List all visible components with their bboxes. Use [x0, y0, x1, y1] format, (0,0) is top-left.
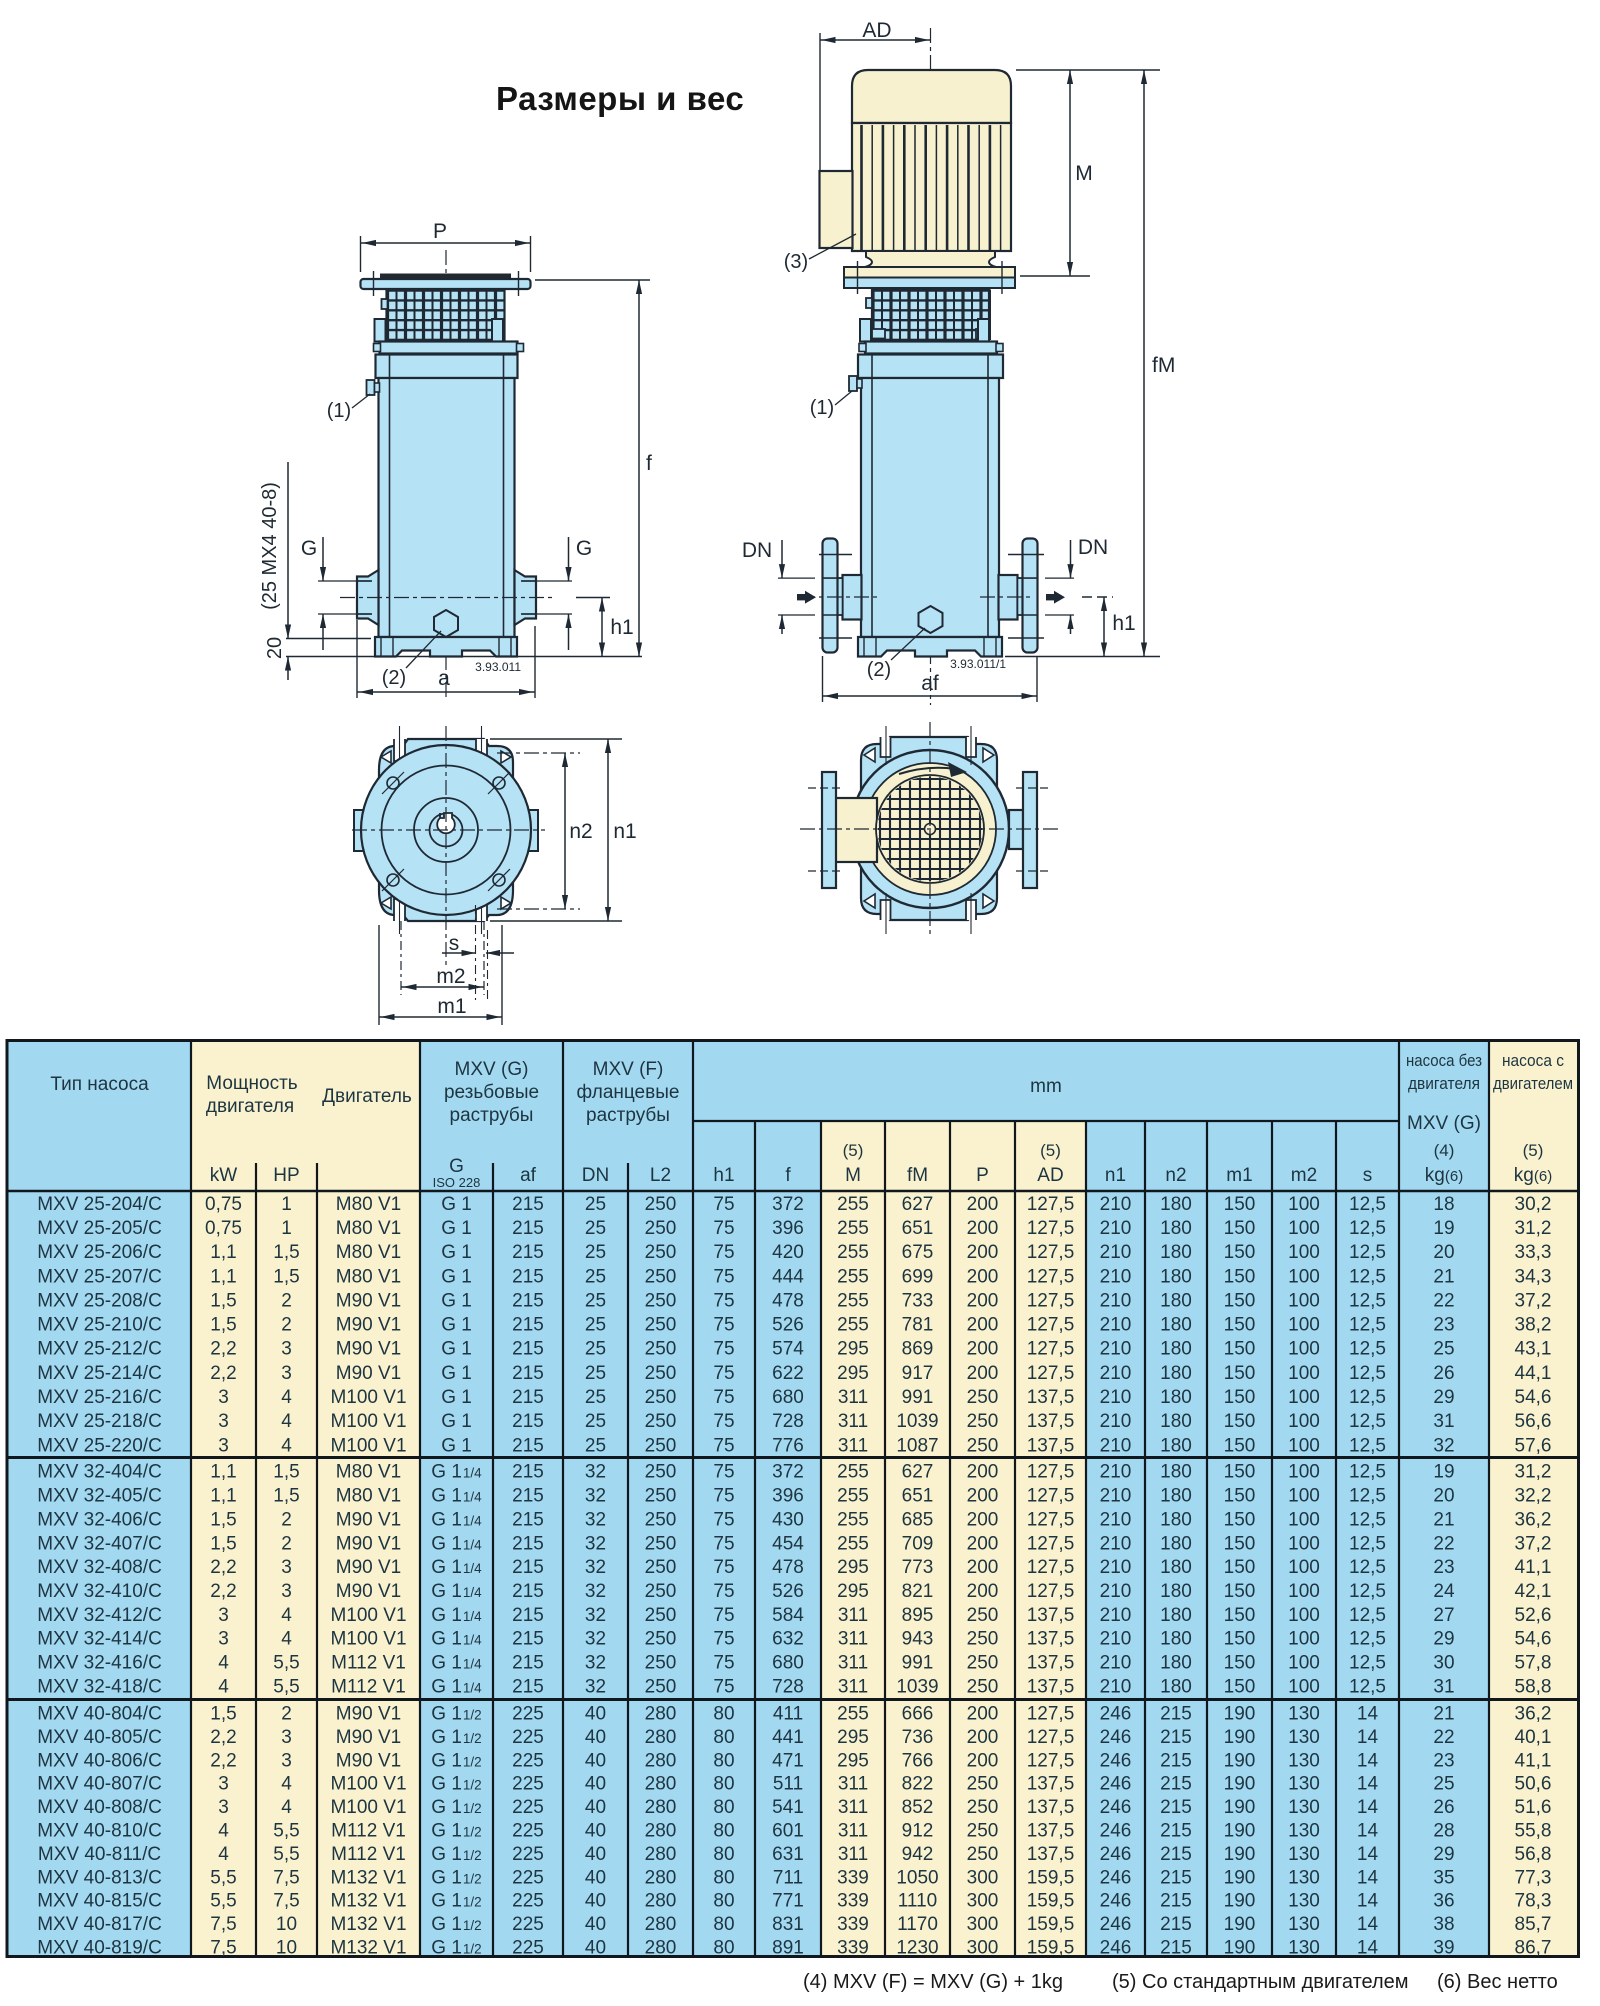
svg-text:G 11/4: G 11/4 — [431, 1653, 482, 1674]
svg-text:5,5: 5,5 — [273, 1844, 299, 1865]
svg-text:2,2: 2,2 — [210, 1363, 236, 1384]
svg-text:200: 200 — [967, 1363, 999, 1384]
svg-text:fM: fM — [1152, 354, 1175, 377]
svg-text:MXV 32-404/C: MXV 32-404/C — [37, 1462, 162, 1483]
svg-text:fM: fM — [907, 1165, 928, 1186]
svg-text:127,5: 127,5 — [1027, 1704, 1075, 1725]
svg-text:12,5: 12,5 — [1349, 1435, 1386, 1456]
svg-text:2,2: 2,2 — [210, 1581, 236, 1602]
svg-text:12,5: 12,5 — [1349, 1676, 1386, 1697]
svg-text:32: 32 — [585, 1629, 606, 1650]
svg-text:300: 300 — [967, 1938, 999, 1959]
svg-text:25: 25 — [1433, 1774, 1454, 1795]
svg-text:26: 26 — [1433, 1797, 1454, 1818]
svg-text:574: 574 — [772, 1339, 804, 1360]
svg-text:AD: AD — [862, 19, 891, 42]
svg-text:250: 250 — [645, 1557, 677, 1578]
svg-text:14: 14 — [1357, 1797, 1379, 1818]
svg-text:M80 V1: M80 V1 — [336, 1218, 401, 1239]
svg-text:G 11/2: G 11/2 — [431, 1844, 481, 1865]
svg-text:19: 19 — [1433, 1218, 1454, 1239]
svg-text:420: 420 — [772, 1242, 804, 1263]
svg-text:32: 32 — [585, 1462, 606, 1483]
svg-text:250: 250 — [645, 1315, 677, 1336]
svg-text:246: 246 — [1100, 1821, 1132, 1842]
svg-text:DN: DN — [1078, 536, 1108, 559]
svg-text:m1: m1 — [1226, 1165, 1252, 1186]
svg-text:300: 300 — [967, 1891, 999, 1912]
svg-text:M90 V1: M90 V1 — [336, 1750, 401, 1771]
svg-text:773: 773 — [902, 1557, 934, 1578]
svg-text:G 11/4: G 11/4 — [431, 1581, 482, 1602]
svg-text:G 11/2: G 11/2 — [431, 1914, 481, 1935]
svg-text:фланцевые: фланцевые — [577, 1082, 680, 1103]
svg-text:100: 100 — [1288, 1242, 1320, 1263]
svg-text:180: 180 — [1160, 1605, 1192, 1626]
svg-text:G 11/4: G 11/4 — [431, 1462, 482, 1483]
svg-text:100: 100 — [1288, 1533, 1320, 1554]
svg-text:651: 651 — [902, 1218, 934, 1239]
svg-text:225: 225 — [512, 1797, 544, 1818]
svg-text:250: 250 — [645, 1266, 677, 1287]
svg-text:200: 200 — [967, 1194, 999, 1215]
svg-text:699: 699 — [902, 1266, 934, 1287]
svg-text:4: 4 — [218, 1821, 229, 1842]
svg-text:250: 250 — [645, 1509, 677, 1530]
svg-text:210: 210 — [1100, 1533, 1132, 1554]
svg-text:150: 150 — [1224, 1363, 1256, 1384]
svg-text:159,5: 159,5 — [1027, 1867, 1075, 1888]
svg-text:MXV 40-815/C: MXV 40-815/C — [37, 1891, 162, 1912]
svg-text:200: 200 — [967, 1315, 999, 1336]
svg-text:651: 651 — [902, 1486, 934, 1507]
svg-text:12,5: 12,5 — [1349, 1509, 1386, 1530]
svg-text:M90 V1: M90 V1 — [336, 1363, 401, 1384]
svg-text:75: 75 — [713, 1266, 734, 1287]
svg-text:M100 V1: M100 V1 — [330, 1774, 406, 1795]
svg-text:32: 32 — [585, 1653, 606, 1674]
svg-text:917: 917 — [902, 1363, 934, 1384]
svg-text:210: 210 — [1100, 1387, 1132, 1408]
svg-text:776: 776 — [772, 1435, 804, 1456]
svg-text:MXV 25-216/C: MXV 25-216/C — [37, 1387, 162, 1408]
svg-text:(5) Со стандартным двигателем: (5) Со стандартным двигателем — [1112, 1971, 1409, 1993]
svg-text:14: 14 — [1357, 1727, 1379, 1748]
svg-text:200: 200 — [967, 1218, 999, 1239]
svg-text:75: 75 — [713, 1339, 734, 1360]
svg-text:75: 75 — [713, 1605, 734, 1626]
svg-text:4: 4 — [281, 1411, 292, 1432]
svg-text:7,5: 7,5 — [273, 1867, 299, 1888]
svg-text:225: 225 — [512, 1774, 544, 1795]
svg-text:2: 2 — [281, 1315, 292, 1336]
svg-text:24: 24 — [1433, 1581, 1455, 1602]
svg-text:75: 75 — [713, 1315, 734, 1336]
svg-text:4: 4 — [218, 1653, 229, 1674]
svg-text:MXV 40-819/C: MXV 40-819/C — [37, 1938, 162, 1959]
svg-text:MXV 25-208/C: MXV 25-208/C — [37, 1290, 162, 1311]
svg-text:280: 280 — [645, 1727, 677, 1748]
svg-text:75: 75 — [713, 1462, 734, 1483]
svg-text:23: 23 — [1433, 1315, 1454, 1336]
svg-text:1110: 1110 — [898, 1891, 937, 1912]
svg-text:130: 130 — [1288, 1938, 1320, 1959]
svg-text:339: 339 — [837, 1938, 869, 1959]
svg-text:MXV 32-416/C: MXV 32-416/C — [37, 1653, 162, 1674]
svg-text:210: 210 — [1100, 1363, 1132, 1384]
svg-text:14: 14 — [1357, 1844, 1379, 1865]
svg-text:180: 180 — [1160, 1194, 1192, 1215]
svg-text:200: 200 — [967, 1486, 999, 1507]
svg-text:12,5: 12,5 — [1349, 1363, 1386, 1384]
svg-text:159,5: 159,5 — [1027, 1891, 1075, 1912]
svg-text:1,1: 1,1 — [210, 1486, 236, 1507]
svg-text:215: 215 — [1160, 1704, 1192, 1725]
svg-text:255: 255 — [837, 1242, 869, 1263]
svg-text:215: 215 — [512, 1509, 544, 1530]
svg-text:насоса с: насоса с — [1502, 1051, 1564, 1070]
svg-text:255: 255 — [837, 1704, 869, 1725]
svg-text:25: 25 — [585, 1290, 606, 1311]
svg-text:280: 280 — [645, 1891, 677, 1912]
svg-text:150: 150 — [1224, 1218, 1256, 1239]
svg-text:40: 40 — [585, 1704, 606, 1725]
svg-text:210: 210 — [1100, 1629, 1132, 1650]
svg-text:4: 4 — [281, 1387, 292, 1408]
svg-text:1,1: 1,1 — [210, 1462, 236, 1483]
svg-text:137,5: 137,5 — [1027, 1821, 1075, 1842]
svg-text:627: 627 — [902, 1462, 934, 1483]
svg-text:P: P — [976, 1165, 989, 1186]
svg-text:(6) Вес нетто: (6) Вес нетто — [1437, 1971, 1558, 1993]
svg-text:246: 246 — [1100, 1938, 1132, 1959]
svg-text:100: 100 — [1288, 1218, 1320, 1239]
svg-text:180: 180 — [1160, 1557, 1192, 1578]
svg-text:M112 V1: M112 V1 — [331, 1676, 406, 1697]
svg-text:250: 250 — [645, 1339, 677, 1360]
svg-text:215: 215 — [512, 1435, 544, 1456]
svg-text:12,5: 12,5 — [1349, 1315, 1386, 1336]
svg-text:M80 V1: M80 V1 — [336, 1194, 401, 1215]
svg-text:526: 526 — [772, 1315, 804, 1336]
svg-text:295: 295 — [837, 1557, 869, 1578]
svg-text:kg(6): kg(6) — [1425, 1165, 1463, 1186]
svg-text:339: 339 — [837, 1891, 869, 1912]
svg-text:127,5: 127,5 — [1027, 1363, 1075, 1384]
svg-text:75: 75 — [713, 1676, 734, 1697]
svg-text:190: 190 — [1224, 1891, 1256, 1912]
svg-text:44,1: 44,1 — [1515, 1363, 1552, 1384]
svg-text:12,5: 12,5 — [1349, 1462, 1386, 1483]
svg-text:250: 250 — [645, 1462, 677, 1483]
svg-text:80: 80 — [713, 1727, 734, 1748]
svg-text:75: 75 — [713, 1629, 734, 1650]
svg-text:250: 250 — [967, 1774, 999, 1795]
svg-text:250: 250 — [967, 1797, 999, 1818]
svg-text:75: 75 — [713, 1242, 734, 1263]
svg-text:MXV 32-406/C: MXV 32-406/C — [37, 1509, 162, 1530]
svg-text:30,2: 30,2 — [1515, 1194, 1552, 1215]
svg-text:3: 3 — [281, 1363, 292, 1384]
svg-text:M112 V1: M112 V1 — [331, 1821, 406, 1842]
svg-text:80: 80 — [713, 1821, 734, 1842]
svg-text:584: 584 — [772, 1605, 804, 1626]
svg-text:250: 250 — [645, 1605, 677, 1626]
svg-text:h1: h1 — [610, 616, 633, 639]
svg-text:75: 75 — [713, 1557, 734, 1578]
svg-text:m2: m2 — [1291, 1165, 1317, 1186]
svg-text:685: 685 — [902, 1509, 934, 1530]
svg-text:150: 150 — [1224, 1435, 1256, 1456]
svg-text:781: 781 — [902, 1315, 934, 1336]
svg-text:215: 215 — [512, 1605, 544, 1626]
svg-text:180: 180 — [1160, 1411, 1192, 1432]
svg-text:1,5: 1,5 — [273, 1462, 299, 1483]
svg-text:250: 250 — [645, 1363, 677, 1384]
svg-text:G 1: G 1 — [441, 1435, 472, 1456]
svg-text:mm: mm — [1030, 1076, 1062, 1097]
svg-text:100: 100 — [1288, 1339, 1320, 1360]
svg-text:2: 2 — [281, 1533, 292, 1554]
svg-text:4: 4 — [281, 1435, 292, 1456]
svg-text:37,2: 37,2 — [1515, 1290, 1552, 1311]
svg-text:22: 22 — [1433, 1727, 1454, 1748]
svg-text:78,3: 78,3 — [1515, 1891, 1552, 1912]
svg-text:h1: h1 — [1112, 612, 1135, 635]
svg-text:MXV 25-204/C: MXV 25-204/C — [37, 1194, 162, 1215]
svg-text:12,5: 12,5 — [1349, 1581, 1386, 1602]
svg-text:G 1: G 1 — [441, 1266, 472, 1287]
svg-text:32: 32 — [1433, 1435, 1454, 1456]
svg-text:M90 V1: M90 V1 — [336, 1339, 401, 1360]
svg-text:80: 80 — [713, 1914, 734, 1935]
svg-text:210: 210 — [1100, 1605, 1132, 1626]
svg-text:29: 29 — [1433, 1844, 1454, 1865]
svg-text:(25 MX4 40-8): (25 MX4 40-8) — [259, 482, 281, 610]
svg-text:41,1: 41,1 — [1515, 1557, 1552, 1578]
svg-text:210: 210 — [1100, 1242, 1132, 1263]
svg-text:100: 100 — [1288, 1411, 1320, 1432]
svg-text:M100 V1: M100 V1 — [330, 1797, 406, 1818]
svg-text:250: 250 — [645, 1486, 677, 1507]
svg-text:280: 280 — [645, 1750, 677, 1771]
svg-text:127,5: 127,5 — [1027, 1509, 1075, 1530]
svg-text:MXV 40-808/C: MXV 40-808/C — [37, 1797, 162, 1818]
svg-text:2,2: 2,2 — [210, 1339, 236, 1360]
svg-text:MXV 32-412/C: MXV 32-412/C — [37, 1605, 162, 1626]
svg-text:L2: L2 — [650, 1165, 671, 1186]
svg-text:3: 3 — [218, 1387, 229, 1408]
svg-text:246: 246 — [1100, 1750, 1132, 1771]
svg-text:56,8: 56,8 — [1515, 1844, 1552, 1865]
svg-text:295: 295 — [837, 1339, 869, 1360]
svg-text:80: 80 — [713, 1797, 734, 1818]
svg-text:100: 100 — [1288, 1462, 1320, 1483]
svg-text:295: 295 — [837, 1750, 869, 1771]
svg-text:G 1: G 1 — [441, 1411, 472, 1432]
svg-text:150: 150 — [1224, 1557, 1256, 1578]
svg-text:DN: DN — [582, 1165, 609, 1186]
svg-text:200: 200 — [967, 1533, 999, 1554]
svg-text:3: 3 — [218, 1797, 229, 1818]
svg-text:75: 75 — [713, 1509, 734, 1530]
svg-text:511: 511 — [773, 1774, 803, 1795]
svg-text:4: 4 — [218, 1844, 229, 1865]
svg-text:M100 V1: M100 V1 — [330, 1411, 406, 1432]
svg-text:40: 40 — [585, 1750, 606, 1771]
svg-text:159,5: 159,5 — [1027, 1938, 1075, 1959]
svg-text:300: 300 — [967, 1867, 999, 1888]
svg-text:3: 3 — [281, 1557, 292, 1578]
svg-text:3: 3 — [218, 1411, 229, 1432]
svg-text:150: 150 — [1224, 1315, 1256, 1336]
svg-text:38: 38 — [1433, 1914, 1454, 1935]
svg-text:58,8: 58,8 — [1515, 1676, 1552, 1697]
svg-text:раструбы: раструбы — [586, 1105, 670, 1126]
svg-text:190: 190 — [1224, 1727, 1256, 1748]
svg-text:631: 631 — [772, 1844, 804, 1865]
svg-text:41,1: 41,1 — [1515, 1750, 1552, 1771]
svg-text:40: 40 — [585, 1867, 606, 1888]
svg-text:75: 75 — [713, 1653, 734, 1674]
svg-text:25: 25 — [1433, 1339, 1454, 1360]
svg-text:180: 180 — [1160, 1486, 1192, 1507]
svg-text:28: 28 — [1433, 1821, 1454, 1842]
svg-text:601: 601 — [772, 1821, 804, 1842]
svg-text:200: 200 — [967, 1727, 999, 1748]
svg-text:34,3: 34,3 — [1515, 1266, 1552, 1287]
svg-text:36: 36 — [1433, 1891, 1454, 1912]
svg-text:ISO 228: ISO 228 — [433, 1175, 481, 1190]
svg-text:100: 100 — [1288, 1315, 1320, 1336]
svg-text:MXV 32-408/C: MXV 32-408/C — [37, 1557, 162, 1578]
svg-text:DN: DN — [742, 539, 772, 562]
svg-text:210: 210 — [1100, 1290, 1132, 1311]
svg-text:339: 339 — [837, 1914, 869, 1935]
svg-text:215: 215 — [1160, 1821, 1192, 1842]
svg-text:f: f — [785, 1165, 791, 1186]
svg-text:M100 V1: M100 V1 — [330, 1629, 406, 1650]
svg-text:255: 255 — [837, 1194, 869, 1215]
svg-text:5,5: 5,5 — [273, 1676, 299, 1697]
svg-text:40: 40 — [585, 1844, 606, 1865]
svg-text:G 11/4: G 11/4 — [431, 1509, 482, 1530]
svg-text:G 11/2: G 11/2 — [431, 1821, 481, 1842]
svg-text:180: 180 — [1160, 1509, 1192, 1530]
svg-text:311: 311 — [838, 1844, 868, 1865]
svg-text:210: 210 — [1100, 1266, 1132, 1287]
svg-text:14: 14 — [1357, 1891, 1379, 1912]
svg-text:12,5: 12,5 — [1349, 1533, 1386, 1554]
svg-text:180: 180 — [1160, 1435, 1192, 1456]
svg-text:31: 31 — [1433, 1676, 1454, 1697]
svg-text:G 11/4: G 11/4 — [431, 1533, 482, 1554]
svg-text:180: 180 — [1160, 1533, 1192, 1554]
svg-text:255: 255 — [837, 1462, 869, 1483]
svg-text:12,5: 12,5 — [1349, 1387, 1386, 1408]
svg-text:M90 V1: M90 V1 — [336, 1704, 401, 1725]
svg-text:3: 3 — [218, 1629, 229, 1650]
svg-text:766: 766 — [902, 1750, 934, 1771]
svg-text:250: 250 — [967, 1605, 999, 1626]
svg-text:n1: n1 — [1105, 1165, 1126, 1186]
svg-text:(2): (2) — [867, 659, 891, 681]
svg-text:MXV 40-804/C: MXV 40-804/C — [37, 1704, 162, 1725]
svg-text:32: 32 — [585, 1486, 606, 1507]
svg-text:250: 250 — [645, 1629, 677, 1650]
svg-text:G 11/4: G 11/4 — [431, 1605, 482, 1626]
svg-text:295: 295 — [837, 1363, 869, 1384]
svg-text:12,5: 12,5 — [1349, 1557, 1386, 1578]
svg-text:1230: 1230 — [896, 1938, 938, 1959]
svg-text:7,5: 7,5 — [210, 1914, 236, 1935]
svg-text:(3): (3) — [784, 251, 808, 273]
svg-text:MXV (G): MXV (G) — [1407, 1113, 1481, 1134]
svg-text:29: 29 — [1433, 1629, 1454, 1650]
svg-text:42,1: 42,1 — [1515, 1581, 1552, 1602]
svg-text:31,2: 31,2 — [1515, 1218, 1552, 1239]
svg-text:255: 255 — [837, 1533, 869, 1554]
svg-text:MXV 32-418/C: MXV 32-418/C — [37, 1676, 162, 1697]
svg-text:100: 100 — [1288, 1581, 1320, 1602]
svg-text:311: 311 — [838, 1605, 868, 1626]
svg-text:32: 32 — [585, 1581, 606, 1602]
svg-text:40: 40 — [585, 1891, 606, 1912]
svg-text:MXV 40-807/C: MXV 40-807/C — [37, 1774, 162, 1795]
svg-text:2,2: 2,2 — [210, 1727, 236, 1748]
svg-text:225: 225 — [512, 1914, 544, 1935]
svg-text:150: 150 — [1224, 1242, 1256, 1263]
svg-text:75: 75 — [713, 1387, 734, 1408]
svg-text:709: 709 — [902, 1533, 934, 1554]
svg-text:280: 280 — [645, 1797, 677, 1818]
svg-text:225: 225 — [512, 1704, 544, 1725]
svg-text:G 11/4: G 11/4 — [431, 1629, 482, 1650]
svg-text:137,5: 137,5 — [1027, 1387, 1075, 1408]
svg-text:295: 295 — [837, 1727, 869, 1748]
svg-text:M100 V1: M100 V1 — [330, 1435, 406, 1456]
svg-text:150: 150 — [1224, 1290, 1256, 1311]
svg-text:280: 280 — [645, 1704, 677, 1725]
svg-text:200: 200 — [967, 1704, 999, 1725]
svg-text:130: 130 — [1288, 1914, 1320, 1935]
svg-text:4: 4 — [281, 1629, 292, 1650]
svg-text:M90 V1: M90 V1 — [336, 1533, 401, 1554]
svg-text:M100 V1: M100 V1 — [330, 1605, 406, 1626]
svg-text:M132 V1: M132 V1 — [330, 1938, 406, 1959]
svg-text:s: s — [449, 932, 460, 955]
svg-text:12,5: 12,5 — [1349, 1218, 1386, 1239]
svg-text:912: 912 — [902, 1821, 934, 1842]
svg-text:180: 180 — [1160, 1581, 1192, 1602]
svg-text:14: 14 — [1357, 1750, 1379, 1771]
svg-text:200: 200 — [967, 1581, 999, 1602]
svg-text:1: 1 — [281, 1194, 292, 1215]
svg-text:250: 250 — [645, 1194, 677, 1215]
svg-text:MXV 40-806/C: MXV 40-806/C — [37, 1750, 162, 1771]
svg-text:25: 25 — [585, 1411, 606, 1432]
svg-text:246: 246 — [1100, 1774, 1132, 1795]
svg-text:180: 180 — [1160, 1315, 1192, 1336]
svg-text:2,2: 2,2 — [210, 1557, 236, 1578]
svg-text:12,5: 12,5 — [1349, 1266, 1386, 1287]
svg-text:215: 215 — [512, 1462, 544, 1483]
svg-text:246: 246 — [1100, 1891, 1132, 1912]
svg-text:MXV 32-410/C: MXV 32-410/C — [37, 1581, 162, 1602]
svg-text:130: 130 — [1288, 1750, 1320, 1771]
svg-text:75: 75 — [713, 1411, 734, 1432]
svg-text:246: 246 — [1100, 1844, 1132, 1865]
